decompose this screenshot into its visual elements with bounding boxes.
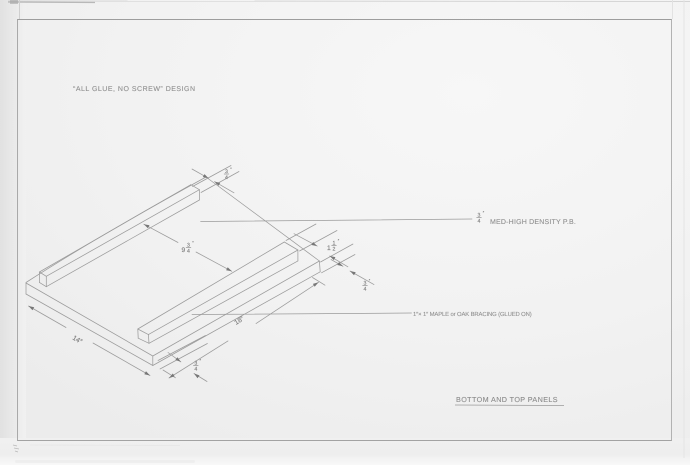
svg-text:4: 4 [364,287,367,293]
svg-text:BOTTOM AND TOP PANELS: BOTTOM AND TOP PANELS [456,395,558,404]
svg-text:2: 2 [333,247,336,253]
svg-text:MED-HIGH DENSITY P.B.: MED-HIGH DENSITY P.B. [490,219,576,226]
svg-text:9: 9 [182,247,186,254]
svg-text:4: 4 [225,175,228,181]
svg-text:1: 1 [327,245,331,252]
svg-text:4: 4 [187,249,190,255]
svg-text:4: 4 [194,367,197,373]
svg-text:1″× 1″ MAPLE or OAK BRACING (G: 1″× 1″ MAPLE or OAK BRACING (GLUED ON) [413,311,532,318]
svg-text:4: 4 [478,219,481,225]
svg-text:“ALL GLUE, NO SCREW” DESIGN: “ALL GLUE, NO SCREW” DESIGN [73,86,196,93]
